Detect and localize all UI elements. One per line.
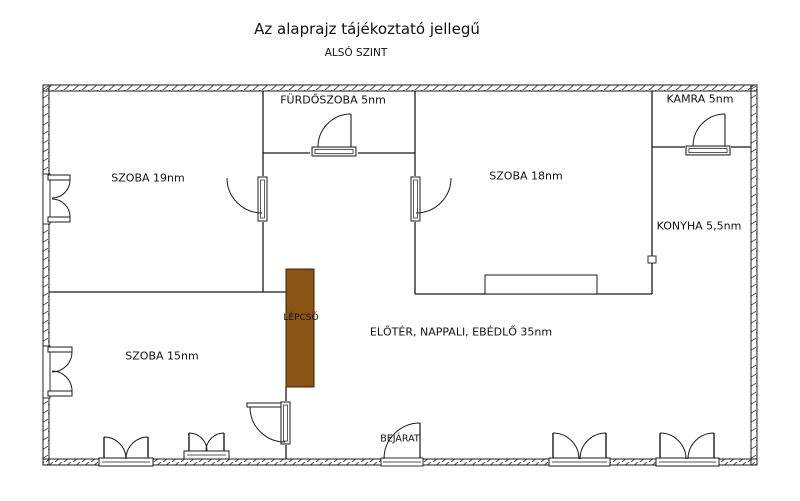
room-label-szoba-15: SZOBA 15nm [125,350,198,363]
door-bejarat [381,423,423,466]
stairs [286,269,314,387]
floor-plan: Az alaprajz tájékoztató jellegű ALSÓ SZI… [0,0,800,501]
room-label-kamra: KAMRA 5nm [667,93,734,106]
outer-wall-left [43,85,49,465]
door-furdoszoba [312,114,356,156]
window-eloter-bottom-2 [656,433,719,466]
outer-wall-right [751,85,757,465]
room-label-bejarat: BEJÁRAT [380,434,419,445]
window-szoba-15-left [43,346,72,398]
interior-walls [49,91,751,459]
window-szoba-15-bottom-1 [99,437,153,466]
konyha-wall-tick [648,256,656,263]
outer-walls [43,85,757,465]
window-eloter-bottom-1 [549,433,610,466]
room-label-szoba-18: SZOBA 18nm [489,170,562,183]
door-szoba-15 [247,402,290,444]
room-label-konyha: KONYHA 5,5nm [657,220,742,233]
plan-title: Az alaprajz tájékoztató jellegű [254,20,480,38]
floor-plan-drawing [0,0,800,501]
room-label-szoba-19: SZOBA 19nm [111,172,184,185]
door-kamra [686,114,730,155]
door-szoba-19 [227,177,267,221]
door-openings [257,141,731,466]
furniture-rect [485,275,597,294]
window-szoba-15-bottom-2 [184,433,229,459]
door-szoba-18 [411,177,451,221]
room-label-eloter: ELŐTÉR, NAPPALI, EBÉDLŐ 35nm [370,326,552,339]
room-label-lepcso: LÉPCSŐ [283,313,318,323]
plan-subtitle: ALSÓ SZINT [325,47,388,59]
room-label-furdoszoba: FÜRDŐSZOBA 5nm [280,94,386,107]
window-szoba-19-left [43,174,70,224]
outer-wall-top [43,85,757,91]
